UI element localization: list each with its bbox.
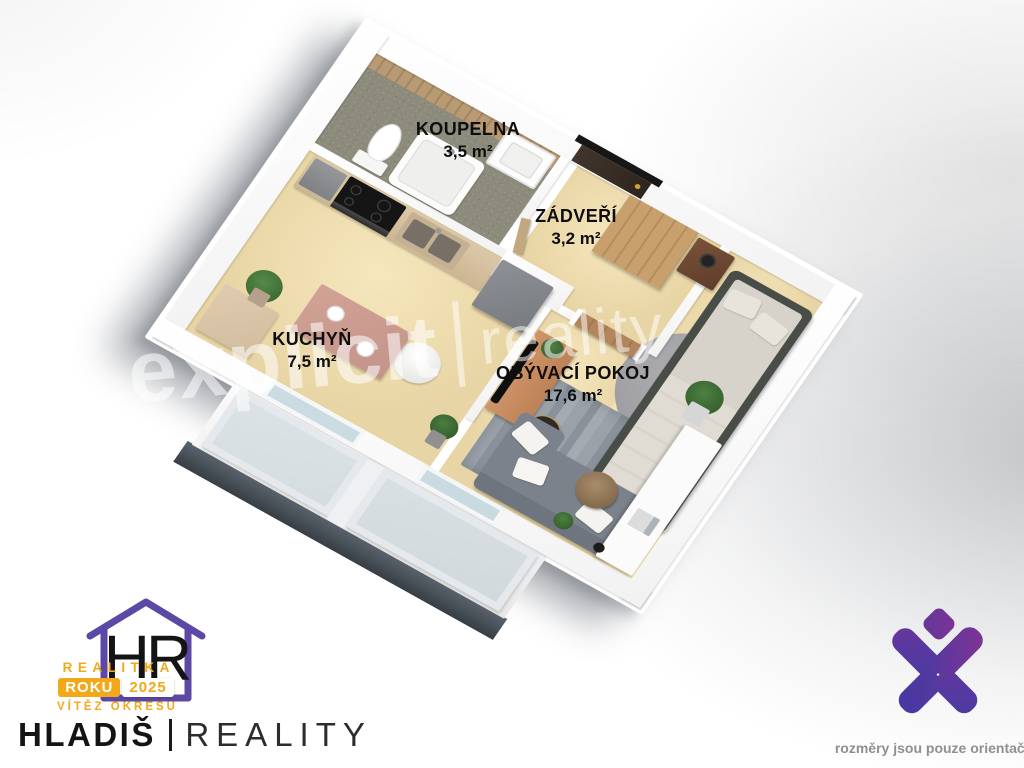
room-name: ZÁDVEŘÍ	[476, 205, 676, 228]
room-label-zadveri: ZÁDVEŘÍ 3,2 m²	[476, 205, 676, 249]
room-area: 3,5 m²	[368, 141, 568, 162]
award-text: REALITKA ROKU 2025 VÍTĚZ OKRESU	[52, 660, 180, 713]
plate	[323, 303, 348, 325]
room-label-koupelna: KOUPELNA 3,5 m²	[368, 118, 568, 162]
room-area: 17,6 m²	[448, 385, 698, 406]
company-name: HLADIŠ	[18, 716, 156, 754]
room-name: OBÝVACÍ POKOJ	[448, 362, 698, 385]
floorplan-3d	[152, 24, 856, 608]
award-badges: ROKU 2025	[52, 678, 180, 697]
purple-x-logo-icon	[882, 608, 992, 716]
table-lamp	[696, 251, 719, 272]
company-suffix: REALITY	[185, 716, 372, 754]
room-label-kuchyn: KUCHYŇ 7,5 m²	[212, 328, 412, 372]
agency-mark	[882, 608, 992, 721]
door-handle	[634, 183, 642, 190]
room-area: 7,5 m²	[212, 351, 412, 372]
disclaimer-text: rozměry jsou pouze orientační	[822, 740, 1024, 756]
room-area: 3,2 m²	[476, 228, 676, 249]
award-badge-roku: ROKU	[58, 678, 120, 697]
award-line-vitez: VÍTĚZ OKRESU	[52, 701, 183, 713]
room-label-obyvaci-pokoj: OBÝVACÍ POKOJ 17,6 m²	[448, 362, 698, 406]
room-name: KUCHYŇ	[212, 328, 412, 351]
floorplan-page: { "rooms": [ {"id":"koupelna","name":"KO…	[0, 0, 1024, 768]
award-badge-2025: 2025	[122, 678, 173, 697]
room-name: KOUPELNA	[368, 118, 568, 141]
company-divider	[169, 719, 173, 751]
award-line-realitka: REALITKA	[52, 660, 186, 675]
company-logo: HLADIŠ REALITY	[18, 716, 372, 754]
